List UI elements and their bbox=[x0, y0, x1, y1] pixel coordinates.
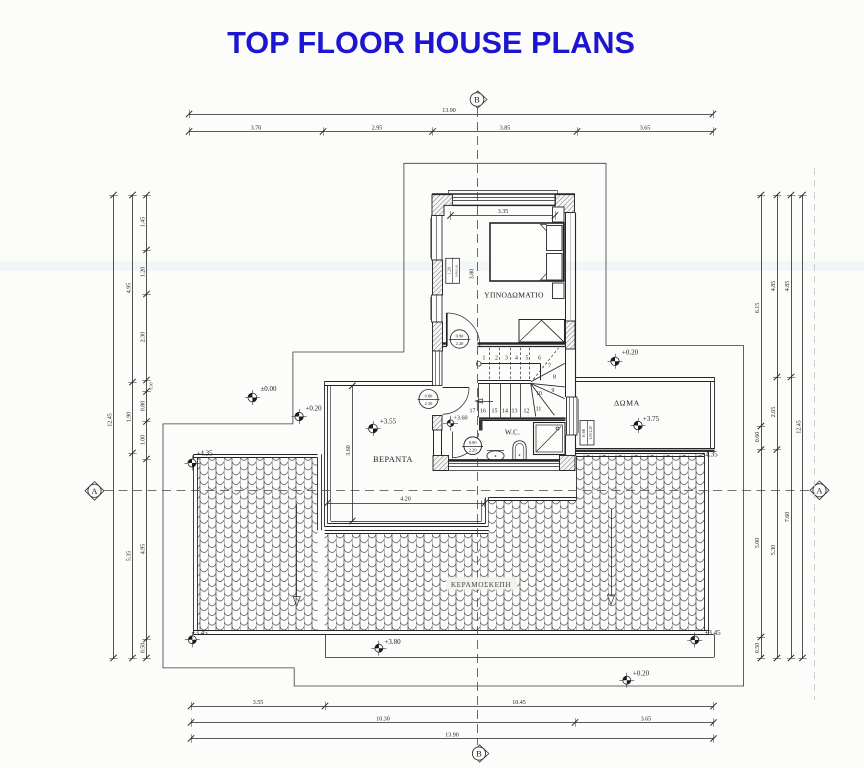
svg-text:0.50: 0.50 bbox=[755, 643, 761, 654]
svg-text:5.30: 5.30 bbox=[771, 545, 777, 556]
svg-text:B: B bbox=[476, 749, 482, 759]
svg-text:13: 13 bbox=[512, 409, 518, 415]
svg-text:0.60: 0.60 bbox=[581, 428, 586, 437]
svg-text:2.20: 2.20 bbox=[456, 341, 464, 346]
svg-text:2.20: 2.20 bbox=[425, 401, 433, 406]
svg-text:+0.20: +0.20 bbox=[633, 669, 650, 677]
svg-text:ΥΠΝΟΔΩΜΑΤΙΟ: ΥΠΝΟΔΩΜΑΤΙΟ bbox=[484, 291, 544, 300]
svg-text:4.95: 4.95 bbox=[126, 283, 132, 294]
svg-text:17: 17 bbox=[470, 409, 476, 415]
svg-text:15: 15 bbox=[492, 409, 498, 415]
svg-text:7.60: 7.60 bbox=[785, 512, 791, 523]
svg-text:3.55: 3.55 bbox=[253, 700, 264, 706]
svg-text:ΔΩΜΑ: ΔΩΜΑ bbox=[614, 399, 640, 408]
svg-text:4.95: 4.95 bbox=[140, 544, 146, 555]
svg-text:+0.20: +0.20 bbox=[622, 349, 639, 357]
svg-text:3.85: 3.85 bbox=[500, 125, 511, 131]
svg-text:1.90: 1.90 bbox=[126, 412, 132, 423]
svg-text:14: 14 bbox=[502, 409, 508, 415]
svg-text:1: 1 bbox=[483, 356, 486, 362]
svg-text:W.C.: W.C. bbox=[505, 429, 520, 437]
svg-text:12.45: 12.45 bbox=[796, 420, 802, 434]
svg-text:+4.35: +4.35 bbox=[196, 449, 213, 457]
svg-text:0.80: 0.80 bbox=[425, 393, 433, 398]
svg-text:0.90: 0.90 bbox=[456, 333, 464, 338]
svg-text:10.45: 10.45 bbox=[512, 700, 526, 706]
svg-text:10: 10 bbox=[536, 391, 542, 397]
svg-text:1.20: 1.20 bbox=[140, 267, 146, 278]
svg-text:1.00: 1.00 bbox=[140, 435, 146, 446]
svg-text:16: 16 bbox=[480, 409, 486, 415]
svg-text:1.45: 1.45 bbox=[140, 217, 146, 228]
svg-text:0.80: 0.80 bbox=[140, 401, 146, 412]
svg-text:4.85: 4.85 bbox=[785, 281, 791, 292]
svg-text:ΒΕΡΑΝΤΑ: ΒΕΡΑΝΤΑ bbox=[373, 455, 413, 464]
svg-text:4: 4 bbox=[515, 356, 518, 362]
svg-text:5: 5 bbox=[526, 356, 529, 362]
svg-text:+3.45: +3.45 bbox=[704, 629, 721, 637]
svg-text:1.20: 1.20 bbox=[447, 267, 452, 275]
svg-text:5.00: 5.00 bbox=[755, 538, 761, 549]
svg-text:A: A bbox=[91, 486, 98, 496]
svg-text:3.70: 3.70 bbox=[251, 125, 262, 131]
svg-text:2.95: 2.95 bbox=[372, 125, 383, 131]
svg-text:12: 12 bbox=[524, 409, 530, 415]
svg-text:ΚΕΡΑΜΟΣΚΕΠΗ: ΚΕΡΑΜΟΣΚΕΠΗ bbox=[451, 580, 511, 589]
svg-text:6: 6 bbox=[538, 356, 541, 362]
svg-text:13.90: 13.90 bbox=[445, 732, 459, 738]
svg-text:0.50: 0.50 bbox=[140, 643, 146, 654]
svg-text:±0.00: ±0.00 bbox=[260, 385, 277, 393]
svg-text:13.90: 13.90 bbox=[442, 108, 456, 114]
svg-text:3.65: 3.65 bbox=[641, 716, 652, 722]
svg-text:1.00 2.20: 1.00 2.20 bbox=[589, 426, 593, 440]
svg-text:TOP FLOOR HOUSE PLANS: TOP FLOOR HOUSE PLANS bbox=[227, 25, 635, 60]
svg-text:4.85: 4.85 bbox=[771, 281, 777, 292]
svg-text:10.30: 10.30 bbox=[376, 716, 390, 722]
svg-text:+0.20: +0.20 bbox=[305, 405, 322, 413]
svg-text:0.60: 0.60 bbox=[755, 432, 761, 443]
svg-text:0.80: 0.80 bbox=[469, 440, 477, 445]
svg-text:2.20: 2.20 bbox=[469, 448, 477, 453]
svg-text:2.30: 2.30 bbox=[140, 332, 146, 343]
svg-text:2.65: 2.65 bbox=[771, 407, 777, 418]
svg-text:5.35: 5.35 bbox=[126, 551, 132, 562]
svg-text:0.30: 0.30 bbox=[149, 382, 154, 389]
svg-text:A: A bbox=[816, 486, 823, 496]
svg-text:+3.60: +3.60 bbox=[453, 414, 467, 421]
svg-text:12.45: 12.45 bbox=[107, 413, 113, 427]
svg-text:2: 2 bbox=[495, 356, 498, 362]
svg-text:3.60: 3.60 bbox=[346, 445, 352, 456]
svg-text:+3.75: +3.75 bbox=[643, 415, 660, 423]
svg-text:6.15: 6.15 bbox=[755, 303, 761, 314]
svg-text:0.80/2.20: 0.80/2.20 bbox=[454, 264, 458, 276]
svg-text:9: 9 bbox=[552, 388, 555, 394]
svg-text:+3.80: +3.80 bbox=[384, 638, 401, 646]
svg-text:3.65: 3.65 bbox=[640, 125, 651, 131]
svg-text:B: B bbox=[474, 95, 480, 105]
svg-text:11: 11 bbox=[536, 407, 542, 413]
svg-text:3.80: 3.80 bbox=[470, 269, 476, 280]
svg-text:8: 8 bbox=[553, 375, 556, 381]
svg-text:3.35: 3.35 bbox=[498, 209, 509, 215]
svg-text:+3.55: +3.55 bbox=[380, 418, 397, 426]
svg-text:3: 3 bbox=[505, 356, 508, 362]
svg-text:+3.45: +3.45 bbox=[191, 629, 208, 637]
svg-text:7: 7 bbox=[548, 364, 551, 370]
svg-text:4.20: 4.20 bbox=[400, 497, 411, 503]
